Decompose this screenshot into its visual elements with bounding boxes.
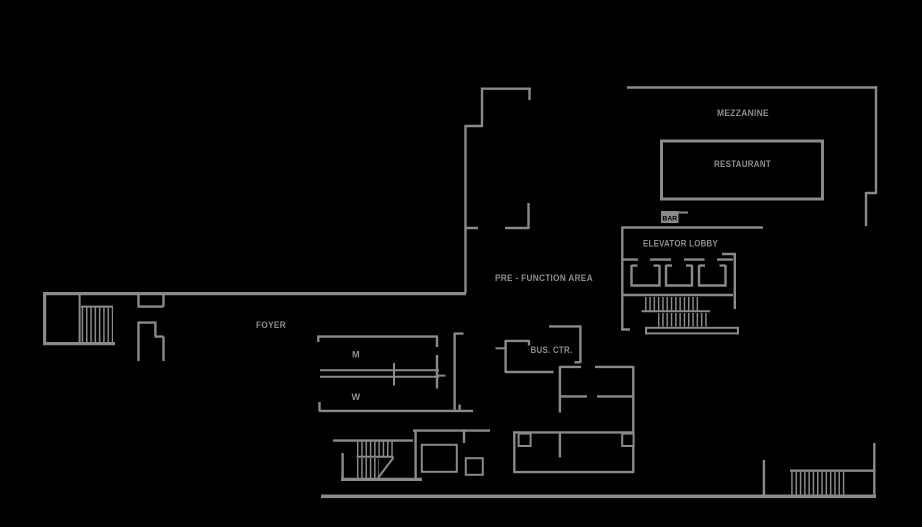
restaurant-walls bbox=[662, 141, 823, 199]
stair-hatch-elevator-lower bbox=[658, 313, 709, 327]
pre-function-north-wall bbox=[466, 203, 529, 229]
service-rooms bbox=[413, 430, 490, 480]
office-door-jamb-west bbox=[519, 434, 531, 446]
foyer-closet-partition bbox=[139, 322, 164, 362]
womens-room-label: W bbox=[351, 392, 360, 402]
office-door-jamb-east bbox=[622, 434, 633, 446]
stair-hatch-west bbox=[81, 307, 113, 343]
elevator-lobby-east-wall bbox=[722, 253, 736, 309]
stair-hatch-center-lower bbox=[357, 458, 379, 478]
west-stair bbox=[43, 293, 115, 344]
bar-callout: BAR bbox=[661, 211, 688, 223]
business-center: BUS. CTR. bbox=[496, 326, 582, 372]
elevator-cab-2 bbox=[666, 265, 692, 286]
restaurant-room: RESTAURANT bbox=[662, 141, 823, 199]
business-center-label: BUS. CTR. bbox=[531, 345, 573, 355]
restroom-corridor-walls bbox=[320, 363, 446, 386]
corridor-east-wall bbox=[454, 333, 464, 410]
restroom-south-wall bbox=[319, 402, 473, 411]
stair-hatch-elevator-upper bbox=[644, 297, 699, 311]
mens-room-label: M bbox=[352, 350, 360, 360]
floor-plan-canvas: RESTAURANT MEZZANINE BAR ELEVATOR LOBBY bbox=[0, 0, 922, 527]
south-perimeter bbox=[321, 443, 876, 497]
center-stair bbox=[333, 441, 422, 480]
elevator-lobby-label: ELEVATOR LOBBY bbox=[643, 239, 718, 249]
restroom-north-wall bbox=[317, 336, 438, 342]
stair-hatch-center-upper bbox=[357, 442, 393, 457]
restrooms: M W bbox=[317, 333, 473, 411]
stair-hatch-east bbox=[791, 472, 845, 496]
mezzanine-outline bbox=[466, 86, 878, 293]
center-stair-break-line bbox=[378, 458, 394, 479]
elevator-lobby: ELEVATOR LOBBY bbox=[621, 227, 763, 333]
bar-label: BAR bbox=[662, 215, 677, 222]
mezzanine-top-wall bbox=[627, 86, 877, 226]
elevator-cab-3 bbox=[699, 265, 726, 286]
restaurant-label: RESTAURANT bbox=[714, 159, 771, 169]
elevator-lobby-west-wall bbox=[621, 227, 630, 330]
foyer-area: FOYER bbox=[43, 293, 466, 361]
pre-function-label: PRE - FUNCTION AREA bbox=[495, 273, 593, 283]
service-small-box bbox=[466, 458, 483, 475]
office-block bbox=[513, 366, 634, 473]
floor-plan-drawing: RESTAURANT MEZZANINE BAR ELEVATOR LOBBY bbox=[0, 0, 922, 527]
elevator-cab-1 bbox=[632, 265, 660, 286]
mezzanine-west-wall bbox=[466, 88, 532, 294]
elevator-stair-landing-plate bbox=[646, 328, 738, 334]
mezzanine-label: MEZZANINE bbox=[717, 108, 769, 118]
service-room-inner-box bbox=[422, 445, 457, 472]
foyer-label: FOYER bbox=[256, 320, 286, 330]
